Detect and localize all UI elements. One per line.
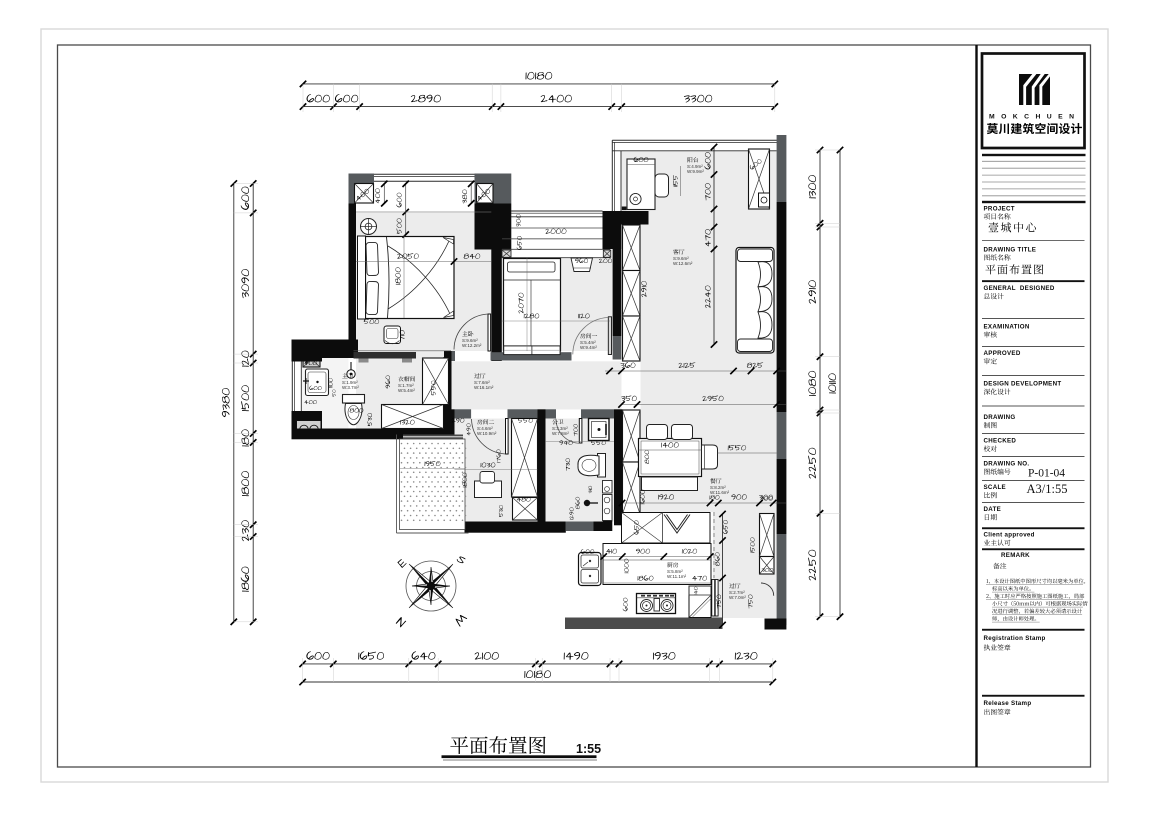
svg-text:W:9.9m²: W:9.9m² bbox=[687, 169, 704, 174]
svg-text:W:11.1m²: W:11.1m² bbox=[667, 574, 687, 579]
svg-text:Client approved: Client approved bbox=[984, 532, 1035, 539]
svg-text:W:10.9m²: W:10.9m² bbox=[477, 431, 497, 436]
svg-text:SCALE: SCALE bbox=[984, 484, 1006, 491]
svg-text:DATE: DATE bbox=[984, 506, 1002, 513]
svg-text:DESIGN DEVELOPMENT: DESIGN DEVELOPMENT bbox=[984, 381, 1062, 388]
svg-text:W:11.6m²: W:11.6m² bbox=[710, 490, 730, 495]
svg-text:CHECKED: CHECKED bbox=[984, 438, 1017, 445]
svg-text:W:16.1m²: W:16.1m² bbox=[474, 385, 494, 390]
svg-text:DRAWING: DRAWING bbox=[984, 414, 1016, 421]
svg-text:Registration Stamp: Registration Stamp bbox=[984, 635, 1046, 642]
svg-text:DRAWING TITLE: DRAWING TITLE bbox=[984, 246, 1037, 253]
svg-text:W:9.4m²: W:9.4m² bbox=[580, 345, 597, 350]
svg-text:W:12.6m²: W:12.6m² bbox=[673, 261, 693, 266]
svg-text:REMARK: REMARK bbox=[1001, 552, 1030, 559]
svg-text:EXAMINATION: EXAMINATION bbox=[984, 323, 1030, 330]
svg-text:W:5.4m²: W:5.4m² bbox=[398, 388, 415, 393]
svg-text:GENERAL DESIGNED: GENERAL DESIGNED bbox=[984, 285, 1055, 292]
svg-text:A3/1:55: A3/1:55 bbox=[1027, 482, 1068, 496]
svg-text:DRAWING NO.: DRAWING NO. bbox=[984, 461, 1030, 468]
svg-text:PROJECT: PROJECT bbox=[984, 205, 1015, 212]
svg-text:1:55: 1:55 bbox=[576, 742, 601, 756]
svg-text:APPROVED: APPROVED bbox=[984, 350, 1021, 357]
svg-text:W:3.7m²: W:3.7m² bbox=[342, 385, 359, 390]
svg-text:Release Stamp: Release Stamp bbox=[984, 700, 1032, 707]
svg-text:W:12.2m²: W:12.2m² bbox=[462, 343, 482, 348]
svg-text:W:7.8m²: W:7.8m² bbox=[552, 431, 569, 436]
svg-text:P-01-04: P-01-04 bbox=[1028, 468, 1065, 480]
svg-text:W:7.0m²: W:7.0m² bbox=[729, 595, 746, 600]
